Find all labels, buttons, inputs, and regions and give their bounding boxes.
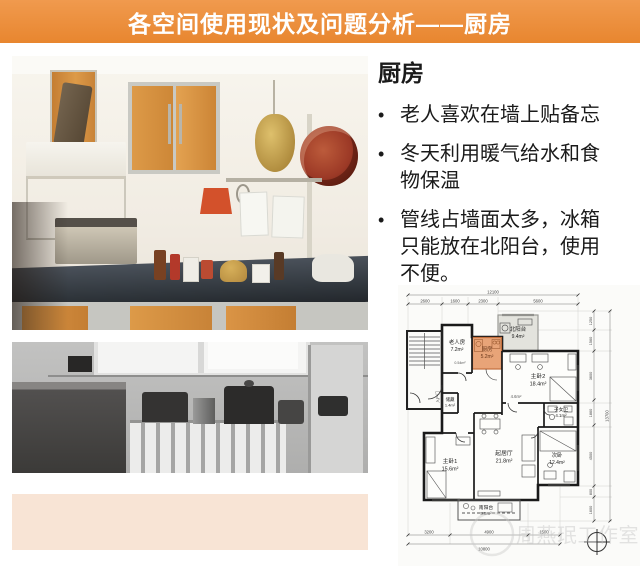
- svg-text:0.54m²: 0.54m²: [454, 361, 466, 365]
- svg-text:3600: 3600: [589, 372, 593, 380]
- radiator-photo: [12, 342, 368, 473]
- svg-text:周燕珉工作室: 周燕珉工作室: [516, 524, 639, 547]
- slide-title: 各空间使用现状及问题分析——厨房: [128, 5, 512, 39]
- svg-text:7.2m²: 7.2m²: [451, 347, 464, 353]
- pot-lid-knob: [244, 380, 254, 387]
- entry-door-label: 入户门: [434, 391, 440, 403]
- svg-text:4900: 4900: [484, 530, 494, 535]
- kitchen-photo: [12, 56, 368, 330]
- bullet-dot: •: [378, 141, 400, 195]
- counter-silhouette: [12, 382, 126, 473]
- jar-red: [201, 260, 213, 279]
- cup-white: [252, 264, 270, 283]
- slide: 各空间使用现状及问题分析——厨房: [0, 0, 640, 566]
- svg-text:子女卫: 子女卫: [554, 406, 569, 413]
- dark-box: [68, 356, 92, 372]
- radiator: [130, 420, 286, 473]
- studio-watermark: 周燕珉工作室: [471, 513, 639, 555]
- shadow-corner: [12, 202, 68, 330]
- dried-wreath: [300, 126, 358, 186]
- utensil-rail: [226, 178, 322, 182]
- lower-door-2: [130, 306, 212, 330]
- bullet-text: 冬天利用暖气给水和食物保温: [400, 141, 606, 195]
- jar-white: [183, 257, 199, 282]
- hanging-wire: [273, 80, 275, 118]
- svg-text:12100: 12100: [487, 289, 499, 294]
- pan-dark: [142, 392, 188, 422]
- header-bar: 各空间使用现状及问题分析——厨房: [0, 0, 640, 43]
- svg-text:起居厅: 起居厅: [495, 449, 513, 457]
- window-bright-pane: [208, 342, 298, 369]
- svg-text:主卧2: 主卧2: [531, 372, 546, 380]
- bullet-text: 老人喜欢在墙上贴备忘: [400, 102, 606, 129]
- svg-text:1250: 1250: [589, 317, 593, 325]
- bullet-dot: •: [378, 102, 400, 129]
- floor-plan: 12100 2600 1600 2300 5600 1250 1560 3600…: [398, 285, 640, 566]
- towel-left: [239, 192, 269, 237]
- svg-text:3200: 3200: [424, 530, 434, 535]
- metal-canister: [193, 398, 215, 424]
- pot-small: [278, 400, 304, 424]
- svg-text:13700: 13700: [605, 410, 610, 422]
- window-mullion: [198, 342, 204, 373]
- svg-text:18.4m²: 18.4m²: [530, 382, 547, 388]
- lower-door-3: [226, 306, 296, 330]
- svg-text:5.2m²: 5.2m²: [481, 354, 494, 360]
- list-item: • 冬天利用暖气给水和食物保温: [378, 141, 636, 195]
- svg-text:厨房: 厨房: [482, 345, 493, 353]
- door-handle: [318, 396, 348, 416]
- svg-text:21.8m²: 21.8m²: [496, 459, 513, 465]
- text-panel: 厨房 • 老人喜欢在墙上贴备忘 • 冬天利用暖气给水和食物保温 • 管线占墙面太…: [378, 54, 636, 300]
- svg-text:15.6m²: 15.6m²: [442, 467, 459, 473]
- svg-text:主卧1: 主卧1: [443, 457, 458, 465]
- cabinet-handle-right: [179, 104, 182, 144]
- svg-text:2600: 2600: [420, 299, 430, 304]
- cabinet-door-right: [176, 86, 216, 170]
- svg-text:12.4m²: 12.4m²: [549, 460, 565, 466]
- list-item: • 老人喜欢在墙上贴备忘: [378, 102, 636, 129]
- svg-text:1600: 1600: [450, 299, 460, 304]
- bullet-dot: •: [378, 207, 400, 288]
- brass-kettle: [220, 260, 247, 282]
- pot-tall: [224, 386, 274, 424]
- svg-text:次卧: 次卧: [552, 451, 563, 459]
- svg-text:4.1m²: 4.1m²: [555, 413, 567, 418]
- svg-text:南阳台: 南阳台: [479, 504, 494, 511]
- svg-text:1600: 1600: [589, 506, 593, 514]
- svg-text:4500: 4500: [589, 452, 593, 460]
- cabinet-door-left: [132, 86, 173, 170]
- svg-text:2300: 2300: [478, 299, 488, 304]
- svg-text:1.4m²: 1.4m²: [445, 403, 456, 408]
- svg-text:1860: 1860: [589, 409, 593, 417]
- bullet-list: • 老人喜欢在墙上贴备忘 • 冬天利用暖气给水和食物保温 • 管线占墙面太多，冰…: [378, 102, 636, 288]
- red-scoop: [200, 188, 232, 214]
- paper-bag: [312, 254, 354, 282]
- svg-text:5600: 5600: [533, 299, 543, 304]
- svg-text:4.6m²: 4.6m²: [511, 394, 522, 399]
- bottle-dark: [274, 252, 284, 280]
- towel-right: [271, 195, 304, 238]
- brass-canister: [255, 114, 295, 172]
- section-title: 厨房: [378, 54, 636, 88]
- bullet-text: 管线占墙面太多，冰箱只能放在北阳台，使用不便。: [400, 207, 606, 288]
- svg-text:北阳台: 北阳台: [510, 325, 526, 333]
- svg-text:800: 800: [589, 489, 593, 495]
- caption-block: [12, 494, 368, 550]
- svg-text:9.4m²: 9.4m²: [512, 334, 525, 340]
- list-item: • 管线占墙面太多，冰箱只能放在北阳台，使用不便。: [378, 207, 636, 288]
- bottle-red: [170, 254, 180, 280]
- range-hood: [26, 142, 126, 179]
- cabinet-handle-left: [168, 104, 171, 144]
- svg-text:1560: 1560: [589, 337, 593, 345]
- svg-text:老人房: 老人房: [449, 338, 465, 346]
- bottle-brown: [154, 250, 166, 280]
